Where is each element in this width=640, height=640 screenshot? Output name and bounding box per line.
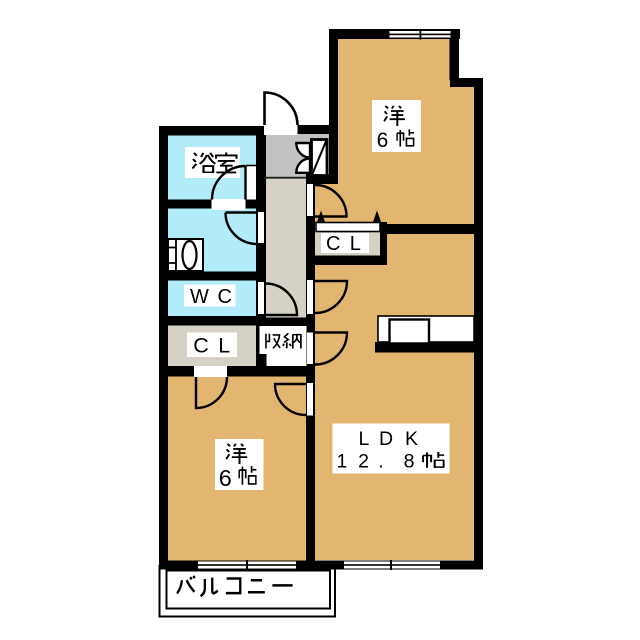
svg-text:LDK: LDK [359, 428, 419, 450]
svg-text:6: 6 [219, 465, 232, 491]
svg-text:6: 6 [377, 129, 389, 152]
